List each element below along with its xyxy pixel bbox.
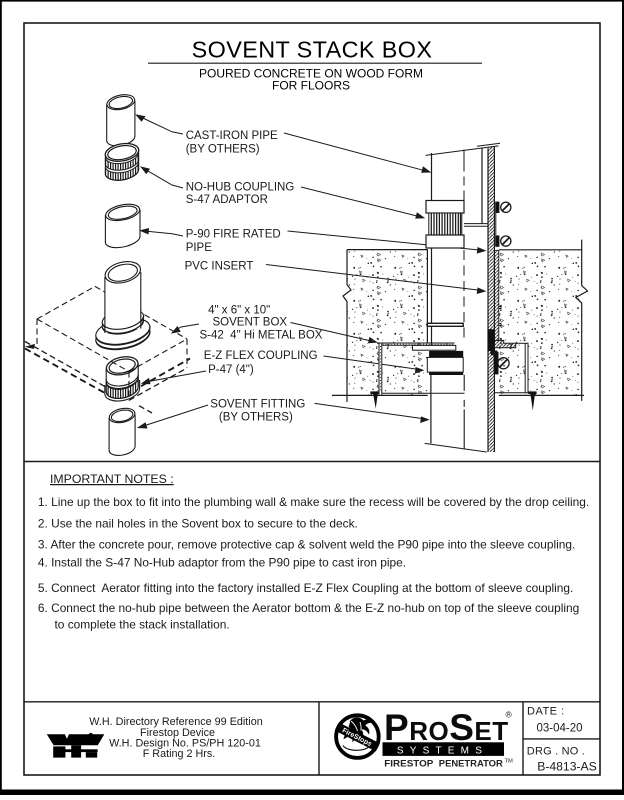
svg-text:to complete the stack installa: to complete the stack installation. [55,618,230,632]
svg-text:S-47 ADAPTOR: S-47 ADAPTOR [186,194,268,206]
svg-text:P-47 (4"): P-47 (4") [208,364,254,376]
svg-text:1. Line up the box to fit into: 1. Line up the box to fit into the plumb… [38,495,589,509]
svg-text:PIPE: PIPE [186,242,213,254]
svg-text:DRG . NO .: DRG . NO . [527,745,585,757]
svg-text:CAST-IRON PIPE: CAST-IRON PIPE [186,130,278,142]
svg-text:SOVENT BOX: SOVENT BOX [213,317,288,329]
svg-text:3. After the concrete pour, re: 3. After the concrete pour, remove prote… [38,538,575,552]
svg-text:P-90 FIRE RATED: P-90 FIRE RATED [186,229,281,241]
svg-text:S-42 4" Hi METAL BOX: S-42 4" Hi METAL BOX [200,330,323,342]
svg-text:B-4813-AS: B-4813-AS [537,759,597,773]
svg-text:PVC INSERT: PVC INSERT [185,261,254,273]
svg-text:E-Z FLEX COUPLING: E-Z FLEX COUPLING [204,350,318,362]
svg-text:SOVENT STACK BOX: SOVENT STACK BOX [192,37,433,63]
svg-text:IMPORTANT NOTES :: IMPORTANT NOTES : [50,472,174,486]
svg-text:03-04-20: 03-04-20 [537,723,583,735]
svg-text:2. Use the nail holes in the S: 2. Use the nail holes in the Sovent box … [38,516,358,530]
svg-text:PENETRATOR: PENETRATOR [439,759,503,770]
svg-text:5. Connect Aerator fitting in: 5. Connect Aerator fitting into the fact… [38,581,573,595]
svg-text:®: ® [506,710,513,720]
svg-text:TM: TM [505,759,514,765]
svg-text:NO-HUB COUPLING: NO-HUB COUPLING [186,181,295,193]
svg-text:(BY OTHERS): (BY OTHERS) [186,143,260,155]
svg-text:F Rating 2 Hrs.: F Rating 2 Hrs. [143,748,216,760]
svg-text:FOR FLOORS: FOR FLOORS [272,79,350,93]
svg-text:FIRESTOP: FIRESTOP [384,759,434,770]
svg-text:DATE :: DATE : [527,706,565,718]
svg-text:4. Install the S-47 No-Hub ada: 4. Install the S-47 No-Hub adaptor from … [38,556,406,570]
svg-text:6. Connect the no-hub pipe bet: 6. Connect the no-hub pipe between the A… [38,601,579,615]
svg-text:SYSTEMS: SYSTEMS [397,745,488,756]
svg-text:4" x 6" x 10": 4" x 6" x 10" [208,305,270,317]
svg-text:SOVENT FITTING: SOVENT FITTING [210,399,305,411]
svg-text:(BY OTHERS): (BY OTHERS) [219,412,293,424]
